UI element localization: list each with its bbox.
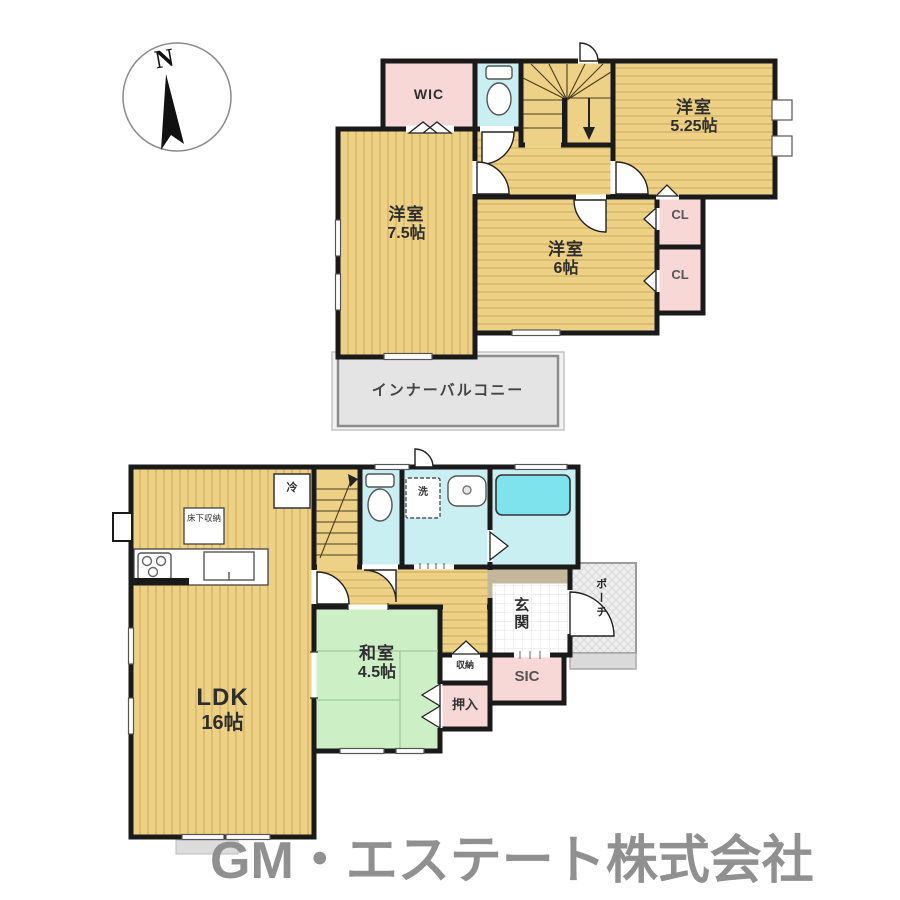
toilet-1f-tank <box>366 474 394 487</box>
bathtub <box>496 475 570 515</box>
floorplan-drawing <box>0 0 900 900</box>
window-ldk-bottom-2 <box>226 835 270 840</box>
window-525-right-2 <box>772 136 792 156</box>
window-75-left-1 <box>336 220 341 256</box>
genkan-step <box>493 570 568 584</box>
stairs-2f-landing-wall <box>562 98 567 145</box>
terrace-step <box>176 840 238 854</box>
door-2f-top <box>580 43 598 61</box>
room-washitsu <box>314 607 440 751</box>
floorplan-canvas: N WIC 洋室 5.25帖 洋室 7.5帖 洋室 6帖 CL CL インナーバ… <box>0 0 900 900</box>
sic <box>490 655 564 703</box>
shuno <box>440 655 490 683</box>
closet-cl2 <box>657 247 703 313</box>
wash-sink-drain <box>463 486 471 494</box>
door-1f-top <box>415 449 433 467</box>
room-yoshitsu-75 <box>338 129 475 357</box>
floor2-plan <box>332 61 775 430</box>
fridge-box <box>274 474 310 508</box>
kitchen-wall-stub <box>131 578 189 585</box>
side-door-ldk <box>113 513 132 541</box>
window-washitsu-bottom-2 <box>396 749 424 754</box>
floor-storage-box <box>184 508 224 544</box>
oshiire <box>440 683 490 729</box>
window-ldk-left-1 <box>129 628 134 664</box>
window-bath-top <box>515 465 567 470</box>
window-75-balcony <box>384 354 432 360</box>
porch-step <box>570 653 636 669</box>
closet-cl1 <box>657 197 703 247</box>
room-yoshitsu-6 <box>475 197 657 333</box>
window-toilet-top <box>375 465 409 470</box>
toilet-1f-bowl <box>368 489 392 521</box>
washer-box <box>406 478 440 518</box>
room-wic <box>383 61 475 129</box>
window-ldk-bottom-1 <box>182 835 224 840</box>
toilet-2f-fixture <box>486 66 512 115</box>
north-arrow-icon <box>161 74 184 150</box>
inner-balcony <box>338 356 558 426</box>
compass <box>123 43 231 151</box>
window-washitsu-bottom-1 <box>340 749 384 754</box>
window-75-left-2 <box>336 274 341 310</box>
window-ldk-left-2 <box>129 698 134 734</box>
window-6-bottom <box>512 330 560 336</box>
window-525-right-1 <box>772 100 792 120</box>
